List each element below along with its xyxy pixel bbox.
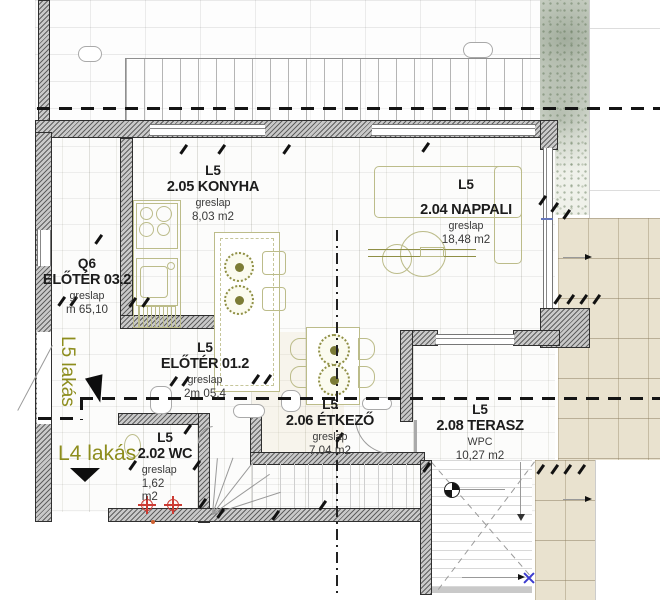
- table-centerpiece: [318, 364, 350, 396]
- room-area: 10,27 m2: [407, 449, 553, 462]
- grid-line: [590, 28, 660, 29]
- room-area: 1,62: [118, 477, 211, 490]
- wc-wall-top: [118, 413, 210, 425]
- leader-line: [460, 489, 505, 490]
- deck-edge: [432, 587, 532, 593]
- room-area: 8,03 m2: [135, 210, 290, 223]
- faucet: [167, 262, 175, 270]
- bar-stool: [224, 252, 254, 282]
- room-name: 2.05 KONYHA: [135, 179, 290, 196]
- leader-line: [563, 499, 587, 500]
- leader-line: [563, 257, 587, 258]
- lower-pavement: [535, 460, 596, 600]
- room-unit: L5: [135, 163, 290, 179]
- apartment-label-l5: L5 lakás: [56, 336, 78, 448]
- terrace-furniture-pill: [463, 42, 493, 58]
- wall: [513, 330, 560, 346]
- room-name: 2.08 TERASZ: [407, 418, 553, 435]
- terrace-furniture-pill: [78, 46, 102, 62]
- room-area: 18,48 m2: [387, 233, 544, 246]
- section-line-horizontal: [37, 107, 660, 110]
- room-area: 7,04 m2: [257, 444, 403, 457]
- chair: [262, 287, 286, 311]
- apartment-label-l4: L4 lakás: [58, 442, 136, 466]
- floor-plan: L5 2.05 KONYHA greslap 8,03 m2 L5 2.04 N…: [0, 0, 660, 600]
- room-unit: Q6: [16, 256, 158, 272]
- room-name: 2.06 ÉTKEZŐ: [257, 413, 403, 430]
- burner: [139, 222, 154, 237]
- right-arrow-icon: [585, 254, 592, 260]
- exterior-wall-left: [35, 132, 52, 522]
- room-name: 2.04 NAPPALI: [387, 202, 544, 219]
- chair: [262, 251, 286, 275]
- wall: [38, 0, 50, 122]
- dining-chair: [290, 366, 307, 388]
- room-label-terasz: L5 2.08 TERASZ WPC 10,27 m2: [407, 402, 553, 462]
- room-finish: greslap: [257, 431, 403, 443]
- burner: [157, 223, 170, 236]
- leader-line: [462, 577, 522, 578]
- window: [372, 124, 535, 136]
- bar-stool: [224, 285, 254, 315]
- room-finish: greslap: [118, 464, 211, 476]
- room-label-eloter-012: L5 ELŐTÉR 01.2 greslap 2m 05,4: [132, 340, 278, 400]
- grid-line: [590, 190, 660, 191]
- upper-terrace-railing: [125, 58, 557, 122]
- room-label-eloter-032: Q6 ELŐTÉR 03.2 greslap m 65,10: [16, 256, 158, 316]
- section-arrow-icon: [70, 468, 100, 482]
- room-unit: L5: [387, 177, 544, 193]
- reference-point-icon: [523, 572, 535, 584]
- room-finish: WPC: [407, 436, 553, 448]
- wall-pier: [540, 120, 558, 150]
- utility-dot-icon: [151, 520, 155, 524]
- room-label-konyha: L5 2.05 KONYHA greslap 8,03 m2: [135, 163, 290, 223]
- level-marker-icon: [444, 482, 460, 498]
- room-name: ELŐTÉR 03.2: [16, 272, 158, 289]
- room-label-nappali: L5 2.04 NAPPALI greslap 18,48 m2: [387, 177, 544, 246]
- room-finish: greslap: [387, 220, 544, 232]
- room-label-etkezo: L5 2.06 ÉTKEZŐ greslap 7,04 m2: [257, 397, 403, 457]
- dining-chair: [290, 338, 307, 360]
- room-area: 2m 05,4: [132, 387, 278, 400]
- room-finish: greslap: [135, 197, 290, 209]
- right-arrow-icon: [585, 496, 592, 502]
- terrace-side-wall: [420, 460, 432, 595]
- window: [150, 124, 265, 136]
- room-area: m 65,10: [16, 303, 158, 316]
- bench-item: [420, 247, 444, 257]
- entry-door-opening: [37, 332, 51, 424]
- setting-out-line: [520, 462, 521, 514]
- room-name: ELŐTÉR 01.2: [132, 356, 278, 373]
- exterior-wall-bottom: [108, 508, 432, 522]
- table-centerpiece: [318, 334, 350, 366]
- room-finish: greslap: [16, 290, 158, 302]
- room-finish: greslap: [132, 374, 278, 386]
- room-unit: L5: [407, 402, 553, 418]
- sliding-door: [436, 334, 514, 345]
- down-arrow-icon: [517, 514, 525, 521]
- room-unit: L5: [257, 397, 403, 413]
- room-unit: L5: [132, 340, 278, 356]
- room-area-unit: m2: [118, 490, 211, 503]
